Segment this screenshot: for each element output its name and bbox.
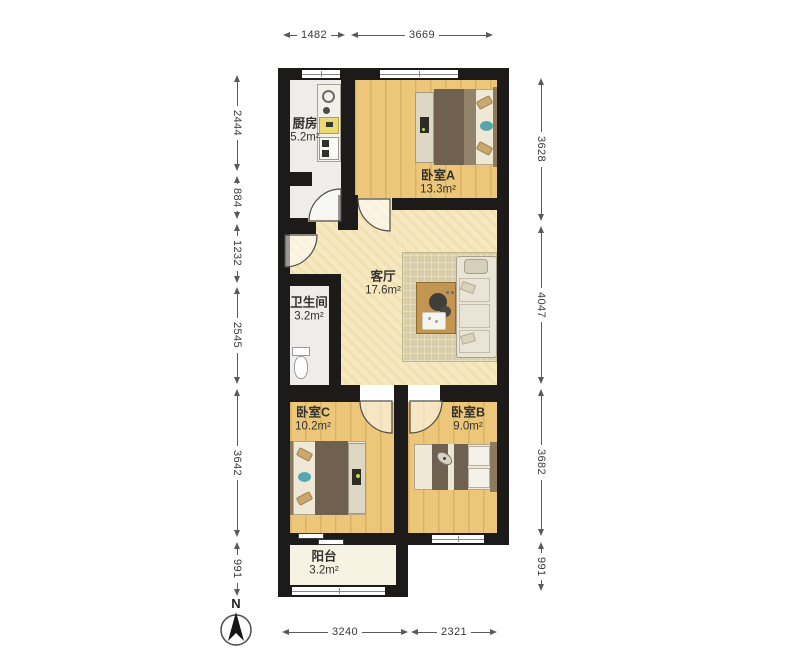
table-dot-1 [446,291,449,294]
dim-left-1: 884 [230,176,244,219]
dim-left-0: 2444 [230,75,244,171]
tray-dot-1 [428,317,431,320]
bedroom-a-blanket-fold [464,89,476,165]
bedroom-b-pillow-2 [468,468,490,488]
bedroom-a-tv-light [422,128,425,131]
wall-bedrooms-top-right [440,385,509,402]
room-label-bedroom-a: 卧室A 13.3m² [420,169,456,198]
room-label-balcony: 阳台 3.2m² [309,550,338,579]
wall-bedrooms-top-left [278,385,360,402]
tray-dot-2 [435,320,438,323]
sofa-ottoman [464,259,488,274]
wall-bathroom-right [329,274,341,385]
room-label-bedroom-b: 卧室B 9.0m² [451,406,485,435]
bedroom-b-blanket-stripe [448,444,454,490]
toilet-tank [292,347,310,356]
compass-needle-icon [228,612,244,641]
room-label-living: 客厅 17.6m² [365,270,401,299]
wall-hall-segment [278,222,316,234]
wall-kitchen-stub [290,172,312,186]
bedroom-c-blanket [315,441,348,515]
bedroom-c-tv-light [356,474,360,478]
dim-left-5: 991 [230,542,244,596]
wall-left [278,80,290,545]
dim-right-0: 3628 [534,78,548,221]
bedroom-a-blanket [434,89,464,165]
wall-bedrooms-top-post [394,385,408,402]
compass-north-label: N [228,596,244,611]
dim-right-1: 4047 [534,226,548,384]
wall-right [497,80,509,545]
kitchen-sink-icon [322,90,335,103]
bedroom-c-cushion [298,472,311,482]
window-bedroom-b-bottom [432,533,484,545]
bedroom-b-lute-dot [443,457,446,460]
dim-bottom-1: 2321 [411,625,497,639]
bedroom-a-cushion [480,121,493,131]
toilet-bowl [294,356,308,379]
wall-post-hall [338,195,358,230]
dim-right-2: 3682 [534,389,548,536]
dim-bottom-0: 3240 [282,625,408,639]
sliding-door-panel-2 [318,539,344,545]
wall-bedroom-c-b-divider [394,402,408,533]
window-bedroom-a-top [380,68,458,80]
kitchen-drain-icon [323,107,330,114]
compass-circle [221,615,251,645]
dim-right-3: 991 [534,542,548,591]
table-tray [422,312,446,330]
bedroom-b-pillow-1 [468,446,490,466]
bedroom-b-headboard [490,442,497,492]
kitchen-board-item [326,122,333,127]
stove-burner-1 [322,140,329,147]
sofa-cushion-2 [459,304,490,328]
stove-burner-2 [322,150,329,157]
dim-top-1: 3669 [351,28,493,42]
dim-left-3: 2545 [230,287,244,384]
dim-left-4: 3642 [230,389,244,537]
window-kitchen-top [302,68,340,80]
room-label-bathroom: 卫生间 3.2m² [290,296,328,325]
room-label-kitchen: 厨房 5.2m² [290,117,319,146]
table-dot-2 [451,291,454,294]
floorplan-canvas: 厨房 5.2m² 卧室A 13.3m² 客厅 17.6m² 卫生间 3.2m² … [0,0,794,667]
wall-bedroom-a-bottom [392,198,497,210]
balcony-floor [290,545,396,585]
dim-top-0: 1482 [283,28,345,42]
window-balcony-bottom [292,585,385,597]
dim-left-2: 1232 [230,224,244,283]
room-label-bedroom-c: 卧室C 10.2m² [295,406,331,435]
